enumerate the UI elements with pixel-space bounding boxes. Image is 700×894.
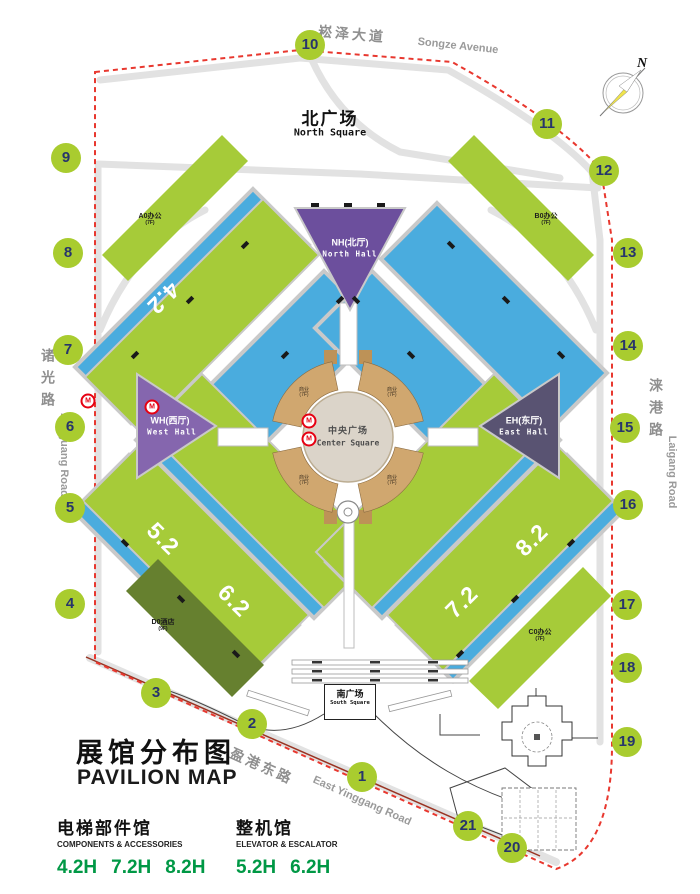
gate-marker-18: 18 bbox=[612, 653, 642, 683]
page-title-zh: 展馆分布图 bbox=[76, 731, 236, 770]
southeast-buildings bbox=[502, 696, 576, 850]
legend-components-halls: 4.2H7.2H8.2H bbox=[57, 857, 219, 879]
south-square-box: 南广场 South Square bbox=[324, 684, 376, 720]
gate-marker-21: 21 bbox=[453, 811, 483, 841]
gate-marker-19: 19 bbox=[612, 727, 642, 757]
east-hall-code: EH(东厅) bbox=[506, 414, 543, 427]
d0-hotel-label: D0酒店(9F) bbox=[152, 620, 175, 632]
gate-marker-14: 14 bbox=[613, 331, 643, 361]
gate-marker-17: 17 bbox=[612, 590, 642, 620]
north-hall-code: NH(北厅) bbox=[332, 236, 369, 249]
b0-office-label: B0办公(7F) bbox=[535, 214, 558, 226]
pavilion-map-page: 北广场 North Square 崧泽大道 Songze Avenue 诸光路 … bbox=[0, 0, 700, 894]
center-square-label-en: Center Square bbox=[317, 439, 380, 448]
laigang-road-label-en: Laigang Road bbox=[666, 436, 678, 509]
gate-marker-11: 11 bbox=[532, 109, 562, 139]
south-rotunda bbox=[337, 501, 359, 523]
c0-office-label: C0办公(7F) bbox=[529, 630, 552, 642]
commercial-ne-label: 商业(7F) bbox=[387, 388, 397, 398]
legend-components-group: 电梯部件馆 COMPONENTS & ACCESSORIES 4.2H7.2H8… bbox=[57, 814, 219, 879]
west-hall-code: WH(西厅) bbox=[151, 414, 190, 427]
gate-marker-16: 16 bbox=[613, 490, 643, 520]
legend-components-label-zh: 电梯部件馆 bbox=[57, 814, 219, 839]
gate-marker-12: 12 bbox=[589, 156, 619, 186]
gate-marker-9: 9 bbox=[51, 143, 81, 173]
commercial-sw-label: 商业(7F) bbox=[299, 476, 309, 486]
legend-elevator-label-zh: 整机馆 bbox=[236, 814, 344, 839]
gate-marker-3: 3 bbox=[141, 678, 171, 708]
north-square-label-zh: 北广场 bbox=[302, 105, 359, 130]
compass-north-label: N bbox=[637, 56, 647, 72]
gate-marker-13: 13 bbox=[613, 238, 643, 268]
gate-marker-7: 7 bbox=[53, 335, 83, 365]
gate-marker-5: 5 bbox=[55, 493, 85, 523]
page-title-en: PAVILION MAP bbox=[77, 766, 238, 790]
gate-marker-10: 10 bbox=[295, 30, 325, 60]
legend-components-label-en: COMPONENTS & ACCESSORIES bbox=[57, 840, 219, 849]
compass-rose bbox=[600, 68, 645, 116]
legend-elevator-label-en: ELEVATOR & ESCALATOR bbox=[236, 840, 344, 849]
gate-marker-15: 15 bbox=[610, 413, 640, 443]
gate-marker-1: 1 bbox=[347, 762, 377, 792]
east-hall-name: East Hall bbox=[499, 428, 549, 437]
center-square-label-zh: 中央广场 bbox=[328, 424, 368, 437]
south-square-label-zh: 南广场 bbox=[325, 687, 375, 700]
metro-station-icon: M bbox=[145, 400, 160, 415]
legend-elevator-halls: 5.2H6.2H bbox=[236, 857, 344, 879]
commercial-se-label: 商业(7F) bbox=[387, 476, 397, 486]
gate-marker-8: 8 bbox=[53, 238, 83, 268]
a0-office-label: A0办公(7F) bbox=[139, 214, 162, 226]
commercial-nw-label: 商业(7F) bbox=[299, 388, 309, 398]
metro-station-icon: M bbox=[302, 414, 317, 429]
metro-station-icon: M bbox=[81, 394, 96, 409]
laigang-road-label-zh: 涞港路 bbox=[646, 378, 666, 444]
west-hall-name: West Hall bbox=[147, 428, 197, 437]
gate-marker-4: 4 bbox=[55, 589, 85, 619]
gate-marker-6: 6 bbox=[55, 412, 85, 442]
gate-marker-2: 2 bbox=[237, 709, 267, 739]
north-square-label-en: North Square bbox=[294, 128, 366, 139]
metro-station-icon: M bbox=[302, 432, 317, 447]
gate-marker-20: 20 bbox=[497, 833, 527, 863]
north-hall-name: North Hall bbox=[322, 250, 377, 259]
south-square-label-en: South Square bbox=[325, 700, 375, 706]
center-square-plaza bbox=[303, 392, 393, 482]
legend-elevator-group: 整机馆 ELEVATOR & ESCALATOR 5.2H6.2H bbox=[236, 814, 344, 879]
